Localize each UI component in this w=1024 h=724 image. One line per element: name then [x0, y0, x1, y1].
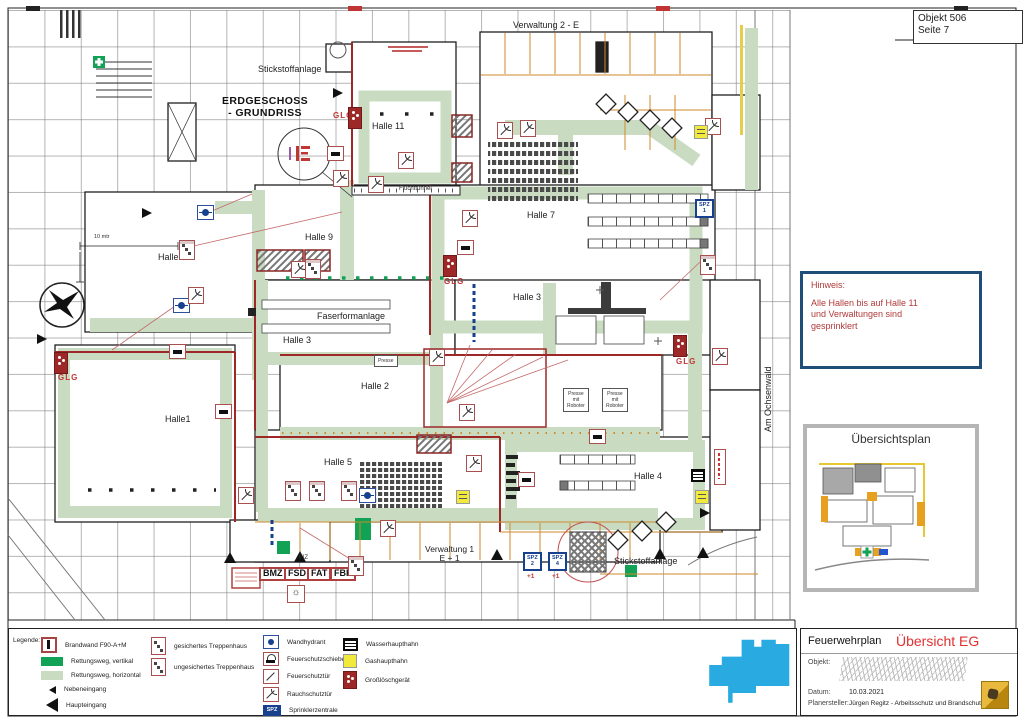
legend-item-label: Rettungsweg, horizontal: [71, 672, 141, 679]
legend-column: WasserhaupthahnGashaupthahnGroßlöschgerä…: [343, 638, 419, 689]
legend-item: Nebeneingang: [41, 684, 141, 695]
legend-item: Wasserhaupthahn: [343, 638, 419, 651]
hydrant-icon: [197, 205, 214, 220]
document-type: Feuerwehrplan: [808, 635, 881, 647]
plan-label: FAT: [307, 567, 331, 581]
plan-label: SPZ 2: [523, 552, 542, 571]
legend-item-label: ungesichertes Treppenhaus: [174, 664, 254, 671]
legend-item: Brandwand F90-A+M: [41, 637, 141, 653]
legend-item: Feuerschutzschiebetor: [263, 652, 353, 666]
legend-item: Großlöschgerät: [343, 671, 419, 689]
tstair-icon: [309, 481, 325, 501]
slidedoor-icon: [518, 472, 535, 487]
slidedoor-icon: [327, 146, 344, 161]
illegible-warning-text: [392, 50, 422, 52]
plan-label: Halle1: [165, 415, 191, 425]
firedoor-icon: [429, 349, 445, 366]
plan-label: +1: [527, 573, 534, 580]
firedoor-icon: [459, 404, 475, 421]
inset-title: Übersichtsplan: [807, 432, 975, 446]
legend-item: Gashaupthahn: [343, 654, 419, 668]
redacted-objekt-value: [839, 657, 967, 681]
legend-column: gesichertes Treppenhausungesichertes Tre…: [151, 637, 254, 676]
legend-item-label: Brandwand F90-A+M: [65, 642, 127, 649]
legend-haupt-icon: [46, 698, 58, 712]
plan-label: ERDGESCHOSS - GRUNDRISS: [222, 96, 308, 119]
legend-rwh-icon: [41, 671, 63, 680]
legend-title: Legende:: [13, 637, 40, 644]
plan-label: Halle 2: [361, 382, 389, 392]
legend-item: gesichertes Treppenhaus: [151, 637, 254, 655]
plan-label: Verwaltung 1 E + 1: [425, 545, 474, 564]
hinweis-title: Hinweis:: [811, 280, 971, 290]
plan-label: GLG: [676, 358, 696, 367]
legend-item: Wandhydrant: [263, 635, 353, 649]
legend-column: Brandwand F90-A+MRettungsweg, vertikalRe…: [41, 637, 141, 712]
legend-rwv-icon: [41, 657, 63, 666]
inset-map: [809, 452, 969, 582]
plan-label: SPZ 4: [548, 552, 567, 571]
tstair-icon: [179, 240, 195, 260]
plan-label: BMZ: [259, 567, 287, 581]
slidedoor-icon: [589, 429, 606, 444]
legend-wasser-icon: [343, 638, 358, 651]
water-icon: [691, 469, 705, 482]
hinweis-note: Hinweis: Alle Hallen bis auf Halle 11 un…: [800, 271, 982, 369]
tstair-icon: [341, 481, 357, 501]
legend-item-label: Nebeneingang: [64, 686, 106, 693]
slidedoor-icon: [169, 344, 186, 359]
legend: Legende: Brandwand F90-A+MRettungsweg, v…: [8, 628, 797, 716]
legend-rstuer-icon: [263, 687, 279, 702]
firedoor-icon: [238, 487, 254, 504]
objekt-label: Objekt:: [808, 659, 830, 666]
site-overview-inset: Übersichtsplan: [803, 424, 979, 592]
legend-item-label: Rauchschutztür: [287, 691, 332, 698]
plan-label: Stickstoffanlage: [258, 65, 321, 75]
gas-icon: [694, 125, 708, 139]
illegible-warning-text: [388, 46, 428, 48]
divider: [801, 653, 1017, 654]
plan-label: Presse mit Roboter: [602, 388, 628, 412]
legend-neben-icon: [49, 686, 56, 694]
hinweis-body: Alle Hallen bis auf Halle 11 und Verwalt…: [811, 298, 971, 332]
company-logo-cube: [981, 681, 1009, 709]
legend-item: Rauchschutztür: [263, 687, 353, 702]
plan-label: Halle 9: [305, 233, 333, 243]
firedoor-icon: [333, 170, 349, 187]
legend-item-label: Rettungsweg, vertikal: [71, 658, 133, 665]
glg-icon: [443, 255, 457, 277]
datum-value: 10.03.2021: [849, 689, 884, 696]
legend-item-label: Feuerschutztür: [287, 673, 330, 680]
legend-item: Feuerschutztür: [263, 669, 353, 684]
lamp-icon: [287, 585, 305, 603]
plan-label: Halle 3: [283, 336, 311, 346]
legend-spz-icon: SPZ: [263, 705, 281, 716]
plan-sheet: Verwaltung 2 - EStickstoffanlageERDGESCH…: [0, 0, 1024, 724]
firedoor-icon: [712, 348, 728, 365]
plan-label: Halle 7: [527, 211, 555, 221]
datum-label: Datum:: [808, 689, 831, 696]
gas-icon: [695, 490, 709, 504]
plan-label: Faserformanlage: [317, 312, 385, 322]
legend-brandwand-icon: [41, 637, 57, 653]
legend-t1-icon: [151, 637, 166, 655]
gas-icon: [456, 490, 470, 504]
firedoor-icon: [466, 455, 482, 472]
legend-item-label: gesichertes Treppenhaus: [174, 643, 247, 650]
glg-icon: [54, 352, 68, 374]
planersteller-value: Jürgen Regitz - Arbeitsschutz und Brands…: [849, 700, 984, 707]
glg-icon: [348, 107, 362, 129]
plan-label: Presse mit Roboter: [563, 388, 589, 412]
firedoor-icon: [188, 287, 204, 304]
legend-item: Rettungsweg, horizontal: [41, 670, 141, 681]
plan-label: GLG: [58, 374, 78, 383]
legend-item-label: Haupteingang: [66, 702, 106, 709]
legend-item-label: Wandhydrant: [287, 639, 325, 646]
legend-item: Haupteingang: [41, 698, 141, 712]
plan-label: Presse: [374, 355, 398, 367]
planersteller-label: Planersteller:: [808, 700, 849, 707]
page-number: Seite 7: [918, 25, 1018, 37]
sheet-id-box: Objekt 506 Seite 7: [913, 10, 1023, 44]
legend-item-label: Sprinklerzentrale: [289, 707, 338, 714]
title-block: Feuerwehrplan Übersicht EG Objekt: Datum…: [800, 628, 1018, 716]
legend-gas-icon: [343, 654, 357, 668]
plan-label: GLG: [444, 278, 464, 287]
plan-label: +1: [552, 573, 559, 580]
plan-label: Fluchttunnel: [399, 186, 432, 193]
legend-item: Rettungsweg, vertikal: [41, 656, 141, 667]
tstair-icon: [700, 255, 716, 275]
legend-item-label: Gashaupthahn: [365, 658, 408, 665]
firedoor-icon: [398, 152, 414, 169]
plan-label: Halle 3: [513, 293, 541, 303]
plan-label: 10 mtr: [94, 234, 110, 240]
plan-label: FIZ: [299, 555, 308, 562]
firedoor-icon: [462, 210, 478, 227]
firedoor-icon: [497, 122, 513, 139]
firedoor-icon: [380, 520, 396, 537]
legend-gross-icon: [343, 671, 357, 689]
tstair-icon: [305, 259, 321, 279]
slidedoor-icon: [215, 404, 232, 419]
hydrant-icon: [359, 488, 376, 503]
legend-item: ungesichertes Treppenhaus: [151, 658, 254, 676]
plan-label: Halle 5: [324, 458, 352, 468]
legend-schiebetor-icon: [263, 652, 279, 666]
legend-t2-icon: [151, 658, 166, 676]
plan-label: Halle 4: [634, 472, 662, 482]
glg-icon: [673, 335, 687, 357]
redvert-icon: [714, 449, 726, 485]
firedoor-icon: [520, 120, 536, 137]
legend-item-label: Großlöschgerät: [365, 677, 410, 684]
legend-fstuer-icon: [263, 669, 279, 684]
plan-label: Am Ochsenwald: [764, 366, 774, 432]
plan-label: Verwaltung 2 - E: [513, 21, 579, 31]
plan-label: SPZ 1: [695, 199, 714, 218]
plan-label: Halle 11: [372, 122, 404, 132]
tstair-icon: [285, 481, 301, 501]
firedoor-icon: [368, 176, 384, 193]
legend-column: WandhydrantFeuerschutzschiebetorFeuersch…: [263, 635, 353, 716]
tstair-icon: [348, 556, 364, 576]
plan-label: Stickstoffanlage: [614, 557, 677, 567]
slidedoor-icon: [457, 240, 474, 255]
legend-hydrant-icon: [263, 635, 279, 649]
legend-item: SPZSprinklerzentrale: [263, 705, 353, 716]
document-title: Übersicht EG: [896, 633, 979, 649]
objekt-number: Objekt 506: [918, 13, 1018, 25]
legend-item-label: Wasserhaupthahn: [366, 641, 419, 648]
